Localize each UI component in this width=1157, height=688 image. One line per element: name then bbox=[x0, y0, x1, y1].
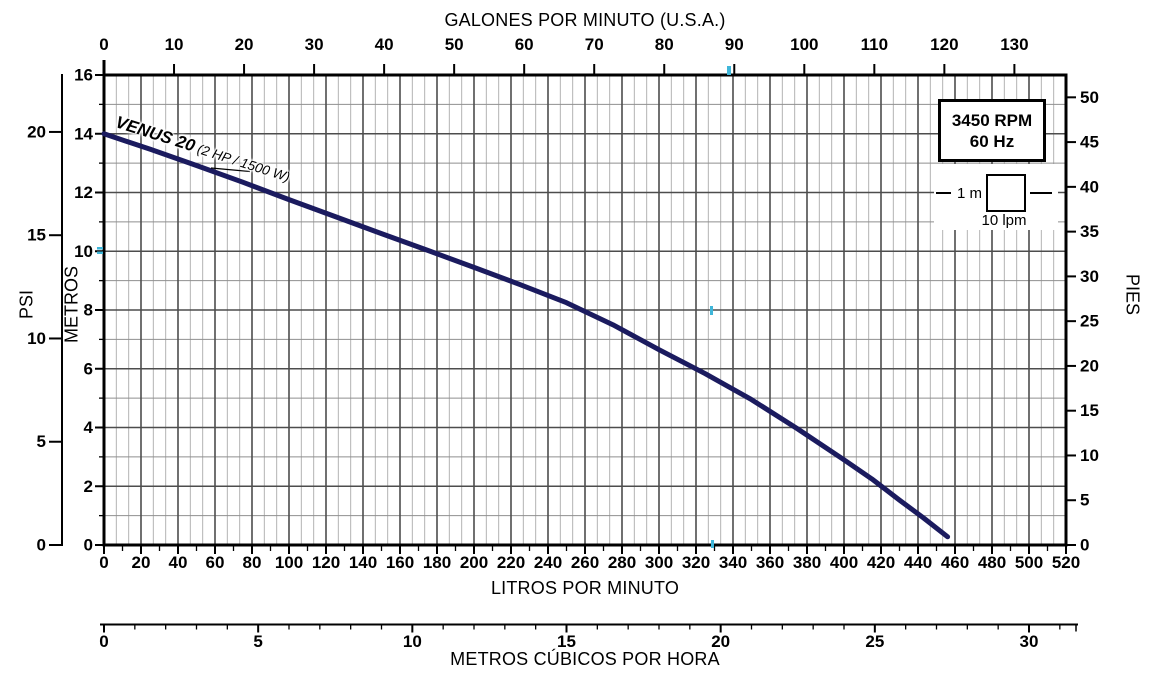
gpm-tick-label: 70 bbox=[585, 35, 604, 54]
pies-tick-label: 35 bbox=[1080, 222, 1099, 241]
registration-mark bbox=[97, 247, 103, 250]
lpm-tick-label: 400 bbox=[830, 553, 858, 572]
gpm-tick-label: 20 bbox=[235, 35, 254, 54]
psi-axis-title: PSI bbox=[17, 285, 38, 325]
scale-indicator-right-line bbox=[1030, 192, 1052, 194]
lpm-tick-label: 100 bbox=[275, 553, 303, 572]
gpm-tick-label: 10 bbox=[165, 35, 184, 54]
pies-axis: 05101520253035404550 bbox=[1068, 88, 1099, 555]
registration-mark bbox=[711, 540, 714, 548]
pies-tick-label: 45 bbox=[1080, 133, 1099, 152]
lpm-tick-label: 40 bbox=[169, 553, 188, 572]
gpm-tick-label: 130 bbox=[1000, 35, 1028, 54]
pies-tick-label: 25 bbox=[1080, 312, 1099, 331]
lpm-tick-label: 440 bbox=[904, 553, 932, 572]
metros-tick-label: 4 bbox=[84, 418, 94, 437]
gpm-tick-label: 40 bbox=[375, 35, 394, 54]
scale-indicator-square bbox=[986, 174, 1026, 212]
gpm-tick-label: 110 bbox=[861, 35, 888, 54]
lpm-tick-label: 200 bbox=[460, 553, 488, 572]
lpm-tick-label: 420 bbox=[867, 553, 895, 572]
lpm-tick-label: 520 bbox=[1052, 553, 1080, 572]
legend-box: 3450 RPM 60 Hz bbox=[938, 99, 1046, 162]
lpm-tick-label: 160 bbox=[386, 553, 414, 572]
gpm-axis: 0102030405060708090100110120130 bbox=[99, 35, 1028, 75]
m3h-axis: 051015202530 bbox=[99, 625, 1078, 652]
metros-tick-label: 10 bbox=[74, 242, 93, 261]
pies-tick-label: 50 bbox=[1080, 88, 1099, 107]
psi-tick-label: 15 bbox=[27, 226, 46, 245]
pies-tick-label: 15 bbox=[1080, 401, 1099, 420]
metros-tick-label: 6 bbox=[84, 359, 93, 378]
gpm-tick-label: 120 bbox=[930, 35, 958, 54]
scale-width-label: 10 lpm bbox=[964, 212, 1044, 229]
lpm-tick-label: 240 bbox=[534, 553, 562, 572]
metros-tick-label: 14 bbox=[74, 124, 93, 143]
lpm-tick-label: 280 bbox=[608, 553, 636, 572]
metros-tick-label: 8 bbox=[84, 301, 93, 320]
registration-mark bbox=[710, 306, 713, 315]
lpm-tick-label: 500 bbox=[1015, 553, 1043, 572]
gpm-tick-label: 60 bbox=[515, 35, 534, 54]
lpm-axis: 0204060801001201401601802002202402602803… bbox=[99, 546, 1080, 572]
pies-tick-label: 20 bbox=[1080, 356, 1099, 375]
metros-tick-label: 2 bbox=[84, 477, 93, 496]
metros-tick-label: 0 bbox=[84, 536, 93, 555]
gpm-tick-label: 100 bbox=[790, 35, 818, 54]
lpm-tick-label: 360 bbox=[756, 553, 784, 572]
legend-frequency: 60 Hz bbox=[970, 131, 1014, 152]
gpm-axis-title: GALONES POR MINUTO (U.S.A.) bbox=[104, 10, 1066, 31]
metros-tick-label: 16 bbox=[74, 66, 93, 85]
lpm-tick-label: 260 bbox=[571, 553, 599, 572]
pies-tick-label: 10 bbox=[1080, 446, 1099, 465]
psi-tick-label: 10 bbox=[27, 329, 46, 348]
pies-tick-label: 5 bbox=[1080, 491, 1089, 510]
pump-curve-venus-20 bbox=[104, 134, 948, 537]
gpm-tick-label: 80 bbox=[655, 35, 674, 54]
metros-tick-label: 12 bbox=[74, 183, 93, 202]
lpm-tick-label: 180 bbox=[423, 553, 451, 572]
lpm-tick-label: 340 bbox=[719, 553, 747, 572]
registration-mark bbox=[97, 252, 103, 255]
m3h-axis-title: METROS CÚBICOS POR HORA bbox=[104, 649, 1066, 670]
psi-tick-label: 20 bbox=[27, 122, 46, 141]
gpm-tick-label: 30 bbox=[305, 35, 324, 54]
metros-axis-title: METROS bbox=[62, 265, 83, 345]
lpm-tick-label: 0 bbox=[99, 553, 108, 572]
lpm-tick-label: 140 bbox=[349, 553, 377, 572]
scale-height-label: 1 m bbox=[938, 185, 982, 202]
lpm-axis-title: LITROS POR MINUTO bbox=[104, 578, 1066, 599]
pump-curve-chart: 0102030405060708090100110120130020406080… bbox=[0, 0, 1157, 688]
legend-rpm: 3450 RPM bbox=[952, 110, 1032, 131]
registration-mark bbox=[727, 66, 731, 75]
gpm-tick-label: 0 bbox=[99, 35, 108, 54]
lpm-tick-label: 60 bbox=[206, 553, 225, 572]
lpm-tick-label: 20 bbox=[132, 553, 151, 572]
lpm-tick-label: 220 bbox=[497, 553, 525, 572]
lpm-tick-label: 300 bbox=[645, 553, 673, 572]
pies-tick-label: 30 bbox=[1080, 267, 1099, 286]
pies-tick-label: 40 bbox=[1080, 177, 1099, 196]
gpm-tick-label: 90 bbox=[725, 35, 744, 54]
lpm-tick-label: 80 bbox=[243, 553, 262, 572]
psi-tick-label: 0 bbox=[37, 536, 46, 555]
pies-axis-title: PIES bbox=[1122, 270, 1143, 320]
lpm-tick-label: 120 bbox=[312, 553, 340, 572]
gpm-tick-label: 50 bbox=[445, 35, 464, 54]
lpm-tick-label: 480 bbox=[978, 553, 1006, 572]
pies-tick-label: 0 bbox=[1080, 536, 1089, 555]
psi-tick-label: 5 bbox=[37, 432, 46, 451]
lpm-tick-label: 320 bbox=[682, 553, 710, 572]
lpm-tick-label: 380 bbox=[793, 553, 821, 572]
lpm-tick-label: 460 bbox=[941, 553, 969, 572]
